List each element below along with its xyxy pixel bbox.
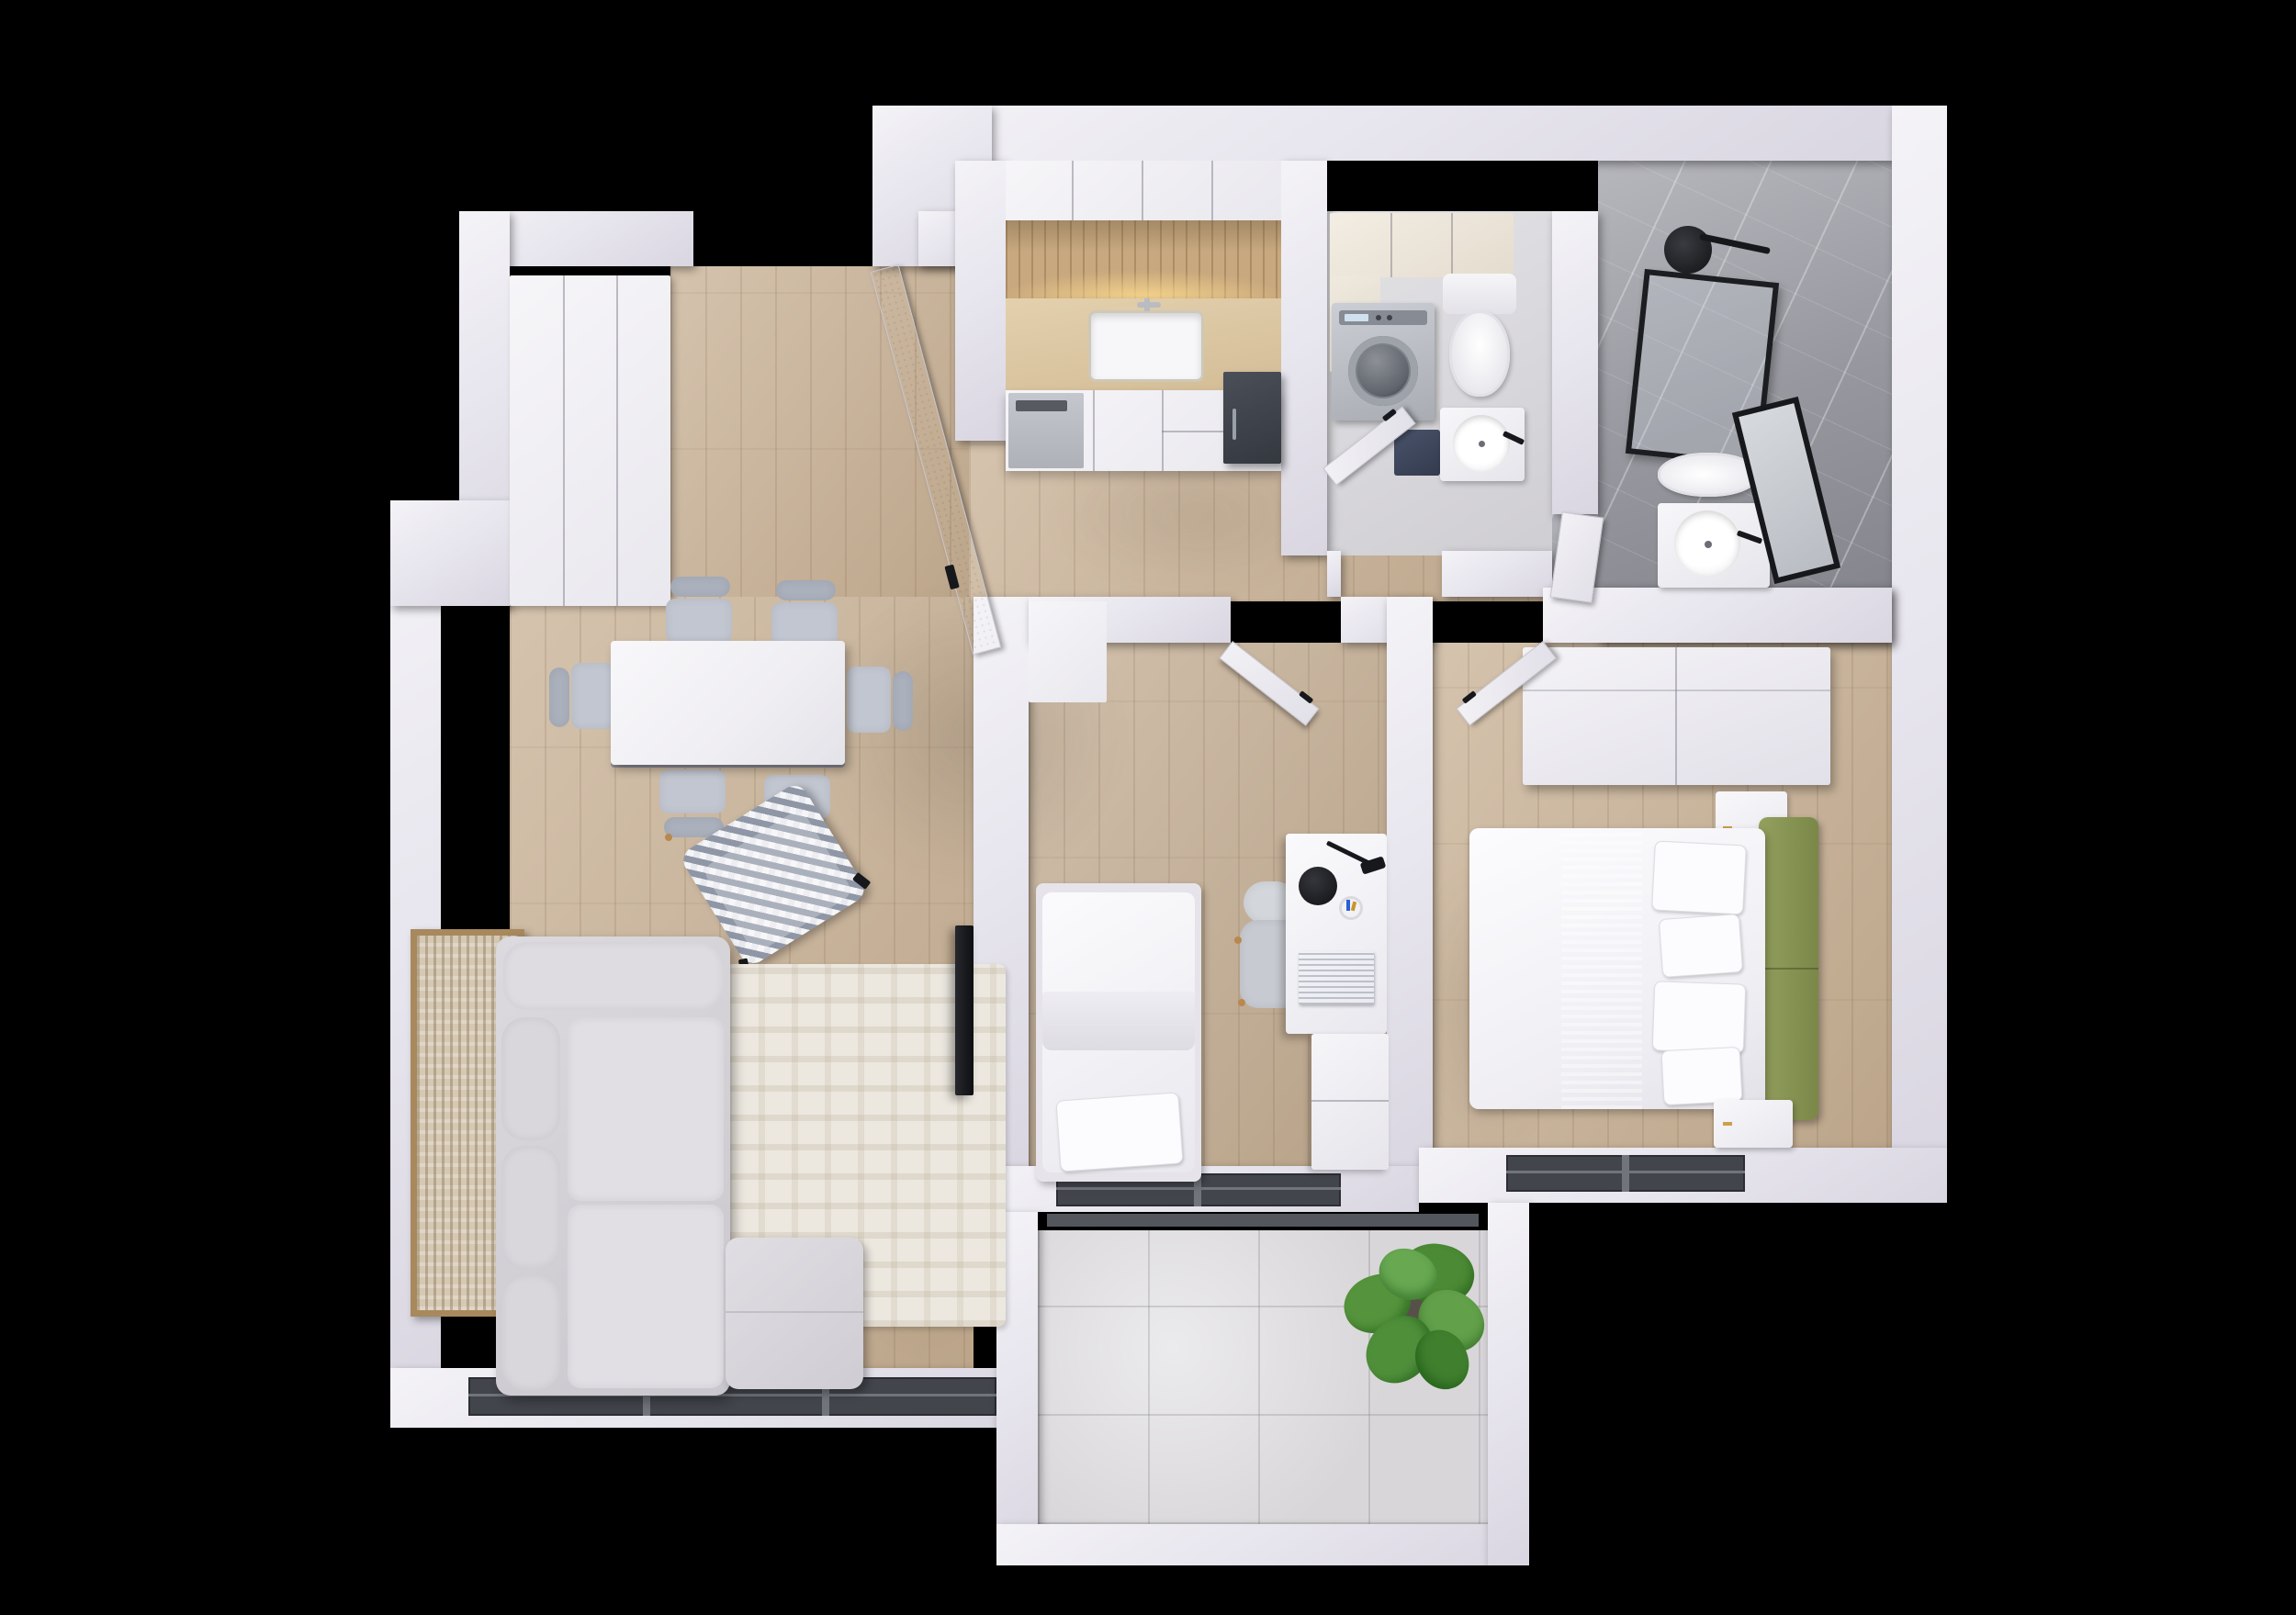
bathroom-vanity (1658, 503, 1770, 588)
shower-head (1664, 226, 1712, 274)
kitchen-laundry-wall (1281, 161, 1327, 555)
kitchen-upper-cabinets (1006, 161, 1281, 220)
bed-throw-blanket (1561, 828, 1642, 1109)
dining-chair (847, 667, 913, 735)
laundry-south-wall-east (1442, 551, 1552, 597)
bedroom-north-wall (1543, 588, 1892, 643)
sofa-chaise (726, 1238, 863, 1389)
laundry-vanity (1440, 408, 1525, 481)
small-room-drawer-unit (1311, 1034, 1389, 1170)
double-bed (1469, 817, 1818, 1120)
dining-chair (666, 577, 735, 643)
small-bedroom-divider-wall (1387, 597, 1433, 1171)
laundry-cabinets (1330, 213, 1514, 277)
floor-plan-render (0, 0, 2296, 1615)
potted-plant (1336, 1235, 1488, 1386)
kitchen-tall-unit (1223, 372, 1281, 464)
east-wall (1892, 106, 1947, 1198)
dining-chair (771, 580, 840, 646)
balcony-window-track (1047, 1214, 1479, 1227)
kitchen-west-wall (955, 161, 1006, 441)
entry-wardrobe (510, 275, 670, 606)
bedroom-sliding-wardrobe (1523, 647, 1830, 785)
desk (1286, 834, 1387, 1034)
kitchen-dishwasher (1008, 393, 1084, 468)
laundry-navy-cabinet (1394, 430, 1440, 476)
main-bedroom-window (1506, 1155, 1745, 1192)
laundry-toilet (1437, 274, 1522, 404)
dining-chair (549, 663, 615, 732)
west-corner-filler (390, 500, 510, 606)
small-room-storage-column (1029, 601, 1107, 702)
corner-sofa (496, 936, 730, 1396)
single-bed (1036, 883, 1201, 1182)
kitchen-under-cabinet-light (1006, 272, 1281, 299)
balcony-parapet-south (996, 1524, 1529, 1565)
nightstand-south (1714, 1100, 1793, 1148)
book (1299, 951, 1374, 1004)
kitchen-sink (1088, 310, 1204, 382)
balcony-parapet-east (1488, 1203, 1529, 1565)
north-wall (872, 106, 1892, 161)
laundry-south-wall-west (1327, 551, 1341, 597)
pen-cup (1339, 896, 1363, 920)
tv[interactable] (955, 925, 974, 1095)
dining-table (611, 641, 845, 765)
washing-machine[interactable] (1332, 303, 1435, 421)
laundry-bath-wall (1552, 211, 1598, 514)
dining-chair (659, 769, 728, 837)
green-headboard (1759, 817, 1818, 1120)
desk-lamp-base (1299, 867, 1337, 905)
